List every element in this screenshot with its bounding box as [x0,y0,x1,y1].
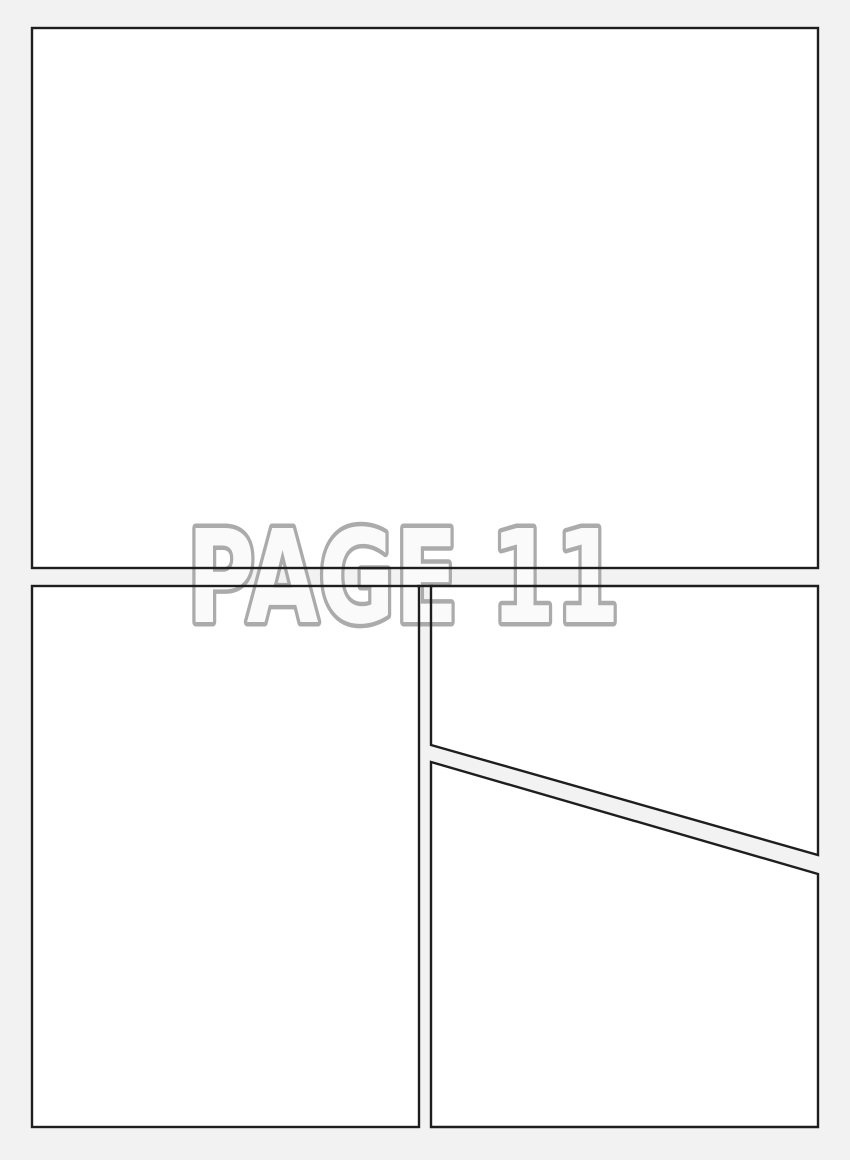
panel-1-fill [32,28,818,568]
comic-page-template: PAGE 11 [0,0,850,1160]
panel-2-fill [32,586,419,1127]
page-number-label: PAGE 11 [187,503,620,653]
comic-page-canvas: PAGE 11 [0,0,850,1160]
